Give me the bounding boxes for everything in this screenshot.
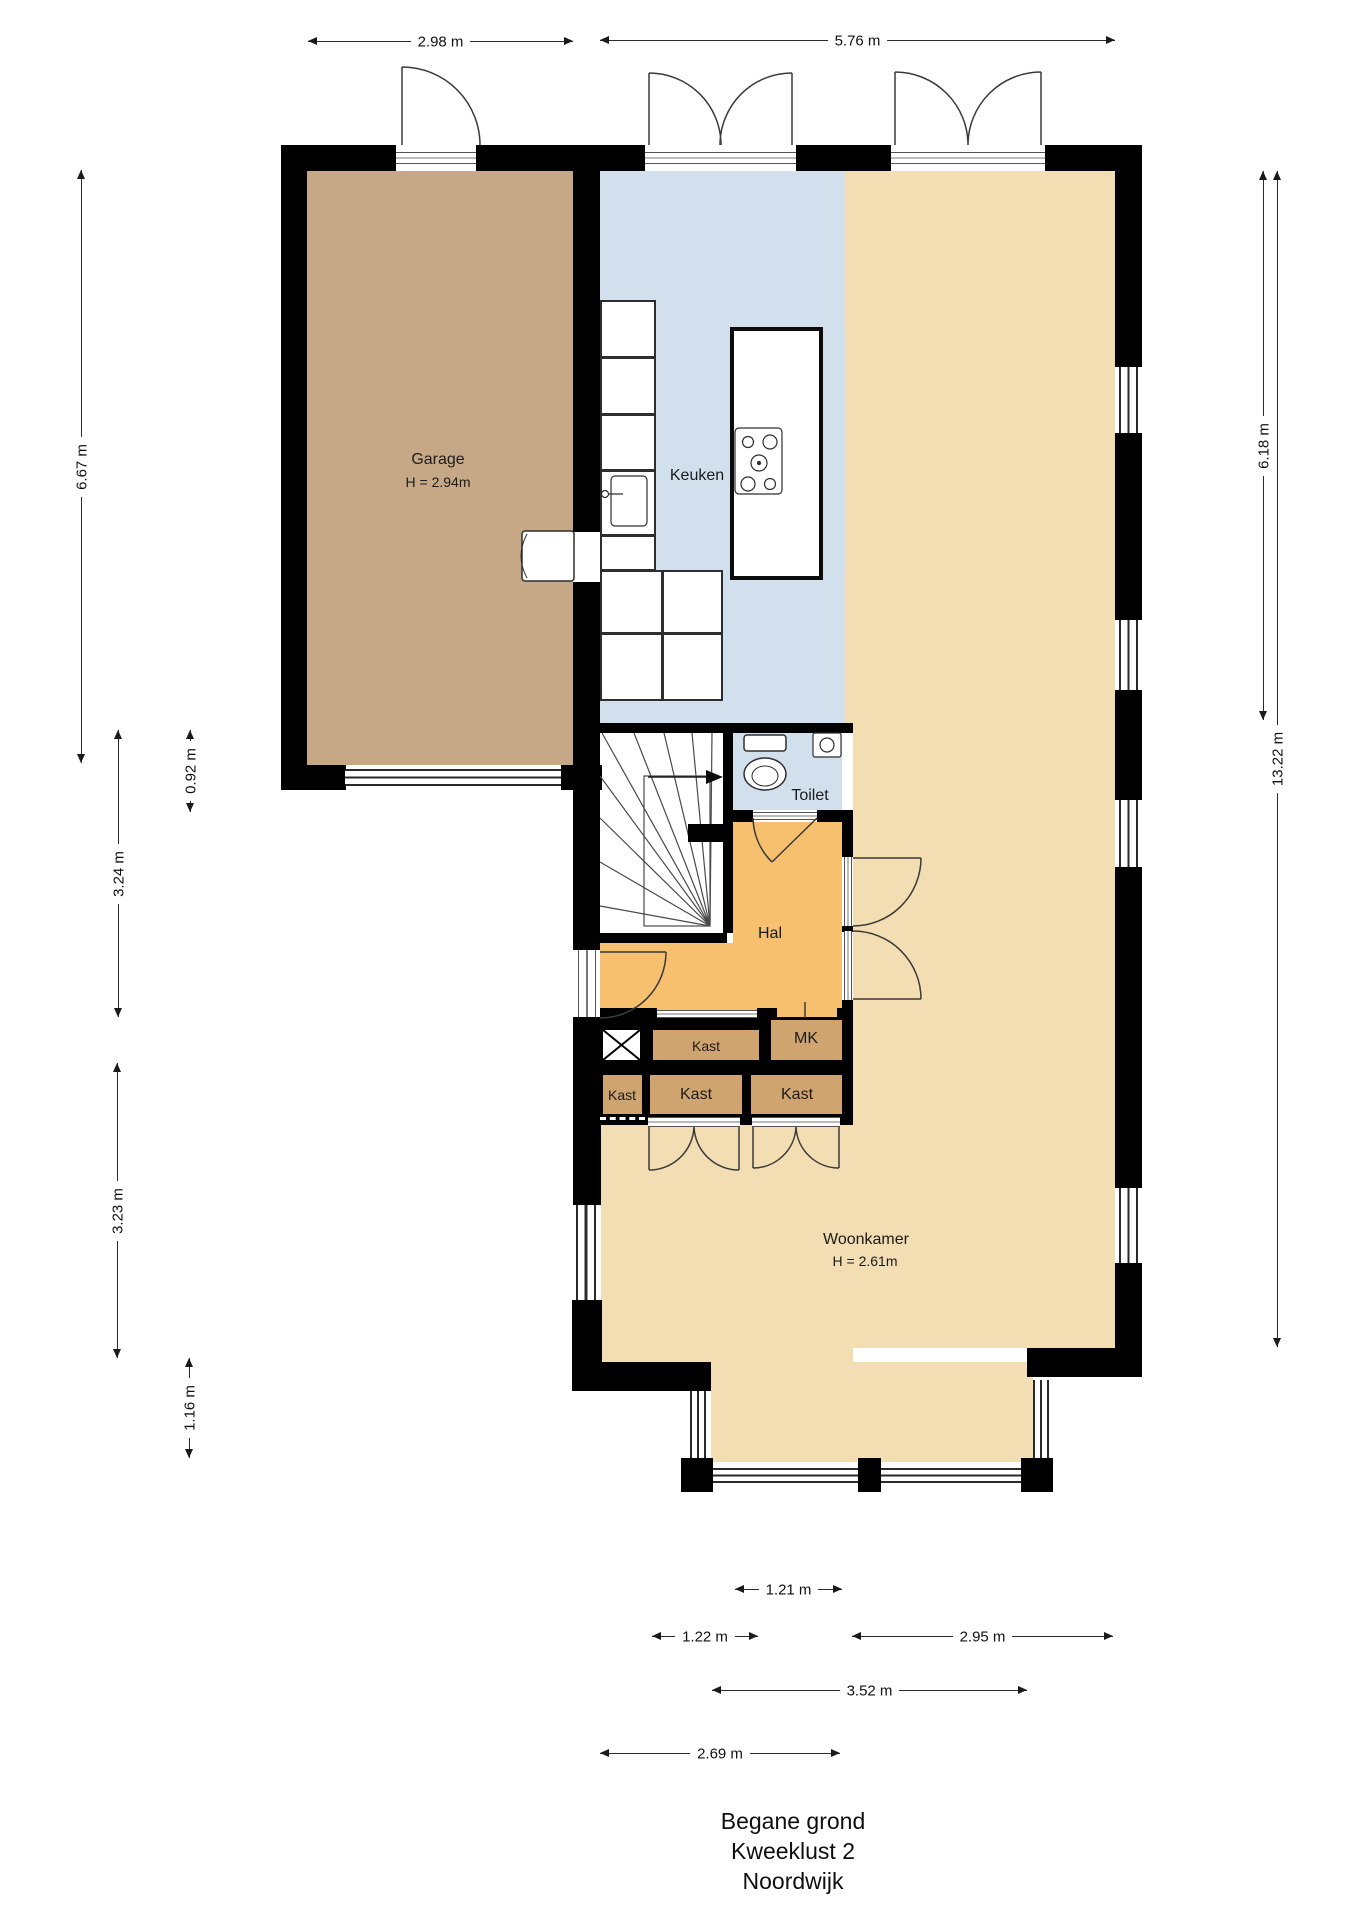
counter-cell [600, 570, 663, 634]
dim-bottom-1-label: 1.21 m [759, 1582, 819, 1599]
living-floor-upper [845, 171, 1115, 723]
garage-door-arc [402, 67, 480, 145]
toilet-door-sill [753, 812, 817, 820]
right-window-4 [1119, 1188, 1138, 1263]
dim-left-offset-label: 0.92 m [183, 741, 200, 801]
dim-bottom-5-label: 2.69 m [690, 1746, 750, 1763]
kast-door-frame-1 [648, 1117, 740, 1127]
keuken-label: Keuken [670, 467, 724, 485]
bay-post-right [1021, 1458, 1053, 1492]
wall-garage-bottom-1 [282, 765, 346, 790]
counter-cell [600, 535, 656, 571]
wall-top-3 [796, 145, 891, 171]
hall-glassdoor-2 [844, 931, 852, 1000]
kast-c-label: Kast [781, 1086, 813, 1104]
dim-bottom-3-label: 2.95 m [953, 1629, 1013, 1646]
dim-bottom-4-label: 3.52 m [840, 1683, 900, 1700]
stairs-newel [688, 824, 723, 842]
wall-step-left [601, 1362, 711, 1391]
bay-window-bottom-1 [713, 1468, 858, 1483]
dim-right-total: 13.22 m [1277, 171, 1278, 1347]
dim-left-bay-label: 1.16 m [182, 1378, 199, 1438]
dim-bottom-1: 1.21 m [735, 1589, 842, 1590]
dim-left-garage-label: 6.67 m [74, 437, 91, 497]
counter-cell [662, 633, 723, 701]
counter-sink-cell [600, 470, 656, 536]
dim-right-upper-label: 6.18 m [1256, 416, 1273, 476]
title-street: Kweeklust 2 [721, 1836, 866, 1866]
dim-left-living: 3.23 m [117, 1063, 118, 1358]
dim-top-right: 5.76 m [600, 40, 1115, 41]
counter-cell [662, 570, 723, 634]
dim-bottom-2: 1.22 m [652, 1636, 758, 1637]
wall-hall-bottom-1 [600, 1008, 657, 1018]
dim-bottom-2-label: 1.22 m [675, 1629, 735, 1646]
dim-top-left: 2.98 m [308, 41, 573, 42]
dim-left-garage: 6.67 m [81, 170, 82, 763]
wall-right-2 [1115, 433, 1142, 620]
hal-label: Hal [758, 925, 782, 943]
dim-left-offset: 0.92 m [190, 730, 191, 812]
kitchen-frenchdoor-sill [645, 152, 796, 164]
woonkamer-height-label: H = 2.61m [833, 1253, 898, 1269]
wall-step-right [1027, 1348, 1142, 1377]
wall-left-garage [281, 145, 307, 790]
hall-floor-left [600, 943, 733, 1018]
dim-right-upper: 6.18 m [1263, 171, 1264, 720]
bay-window-right [1033, 1380, 1049, 1458]
wall-stairs-right [723, 733, 733, 933]
dim-left-living-label: 3.23 m [110, 1181, 127, 1241]
title-floor: Begane grond [721, 1806, 866, 1836]
dim-top-right-label: 5.76 m [828, 33, 888, 50]
dim-left-hall: 3.24 m [118, 730, 119, 1017]
right-window-1 [1119, 367, 1138, 433]
wall-right-3 [1115, 690, 1142, 800]
living-frenchdoor-arcs [895, 72, 1041, 145]
west-living-window [576, 1205, 596, 1300]
dim-bottom-5: 2.69 m [600, 1753, 840, 1754]
counter-cell [600, 633, 663, 701]
mk-label: MK [794, 1030, 818, 1048]
wall-kitchen-bottom [600, 723, 853, 733]
garage-height-label: H = 2.94m [406, 474, 471, 490]
garage-label: Garage [411, 451, 464, 469]
title-block: Begane grond Kweeklust 2 Noordwijk [721, 1806, 866, 1896]
kitchen-island [730, 327, 823, 580]
wall-stairs-bottom [600, 933, 727, 943]
title-city: Noordwijk [721, 1866, 866, 1896]
wall-right-4 [1115, 867, 1142, 1188]
dim-left-hall-label: 3.24 m [111, 844, 128, 904]
bay-post-left [681, 1458, 713, 1492]
wall-toilet-bottom-1 [723, 810, 753, 822]
hall-glassdoor-1 [844, 857, 852, 926]
counter-cell [600, 300, 656, 358]
kast-top-label: Kast [692, 1038, 720, 1054]
stairs-direction-arrow [706, 770, 723, 784]
front-door-frame [578, 950, 596, 1017]
bay-window-bottom-2 [881, 1468, 1021, 1483]
woonkamer-label: Woonkamer [823, 1231, 909, 1249]
dim-top-left-label: 2.98 m [411, 34, 471, 51]
kast-dashed-edge [600, 1117, 645, 1120]
garage-bottom-window [345, 769, 561, 786]
toilet-label: Toilet [791, 787, 828, 805]
wall-right-1 [1115, 145, 1142, 367]
kast-a-label: Kast [608, 1087, 636, 1103]
floorplan-canvas: Garage H = 2.94m Keuken Toilet Hal Kast … [0, 0, 1358, 1920]
kast-b-label: Kast [680, 1086, 712, 1104]
dim-left-bay: 1.16 m [189, 1358, 190, 1458]
living-floor-bay [711, 1362, 1033, 1462]
living-floor-lower [601, 1125, 853, 1362]
wall-center-upper [573, 171, 600, 532]
counter-cell [600, 414, 656, 471]
kitchen-frenchdoor-leaves [649, 73, 792, 145]
kast-door-frame-2 [752, 1117, 840, 1127]
hall-floor-right [733, 822, 842, 1018]
wall-hall-right-1 [842, 822, 853, 857]
dim-bottom-4: 3.52 m [712, 1690, 1027, 1691]
right-window-3 [1119, 800, 1138, 867]
right-window-2 [1119, 620, 1138, 690]
living-frenchdoor-leaves [895, 72, 1041, 145]
closet-slider-frame [657, 1010, 757, 1018]
wall-toilet-bottom-2 [817, 810, 853, 822]
shaft-box [600, 1027, 643, 1063]
dim-right-total-label: 13.22 m [1270, 725, 1287, 793]
staircase [600, 733, 712, 926]
wall-west-living [572, 1300, 602, 1391]
bay-window-left [690, 1391, 706, 1458]
dim-bottom-3: 2.95 m [852, 1636, 1113, 1637]
wall-center-lower [573, 582, 600, 950]
garage-door-sill [396, 152, 476, 164]
kitchen-frenchdoor-arcs [649, 73, 792, 145]
bay-post-center [858, 1458, 881, 1492]
living-frenchdoor-sill [891, 152, 1045, 164]
wall-top-2 [476, 145, 645, 171]
counter-cell [600, 357, 656, 415]
